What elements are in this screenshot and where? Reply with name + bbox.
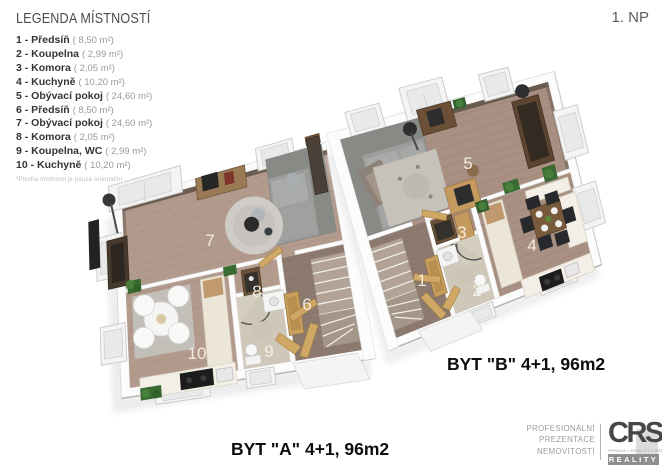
svg-text:2: 2: [472, 281, 481, 300]
svg-text:1: 1: [417, 271, 426, 290]
svg-text:9: 9: [264, 342, 273, 361]
svg-text:3: 3: [457, 223, 466, 242]
svg-text:5: 5: [463, 154, 472, 173]
svg-text:7: 7: [205, 231, 214, 250]
svg-text:10: 10: [188, 344, 207, 363]
svg-text:6: 6: [302, 295, 311, 314]
svg-text:4: 4: [527, 236, 536, 255]
svg-text:8: 8: [252, 282, 261, 301]
